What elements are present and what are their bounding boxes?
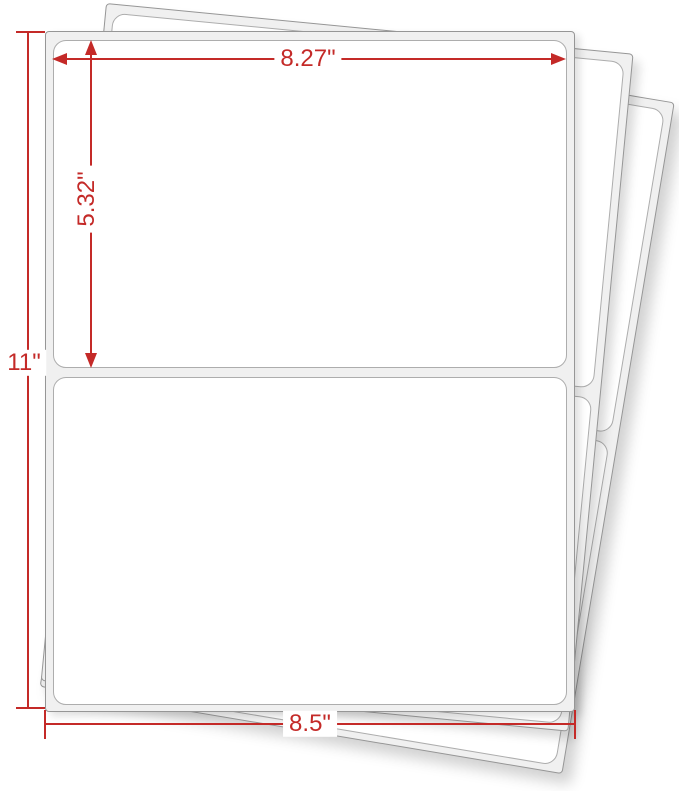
label-width-dimension-text: 8.27"	[274, 46, 341, 72]
arrowhead-right-icon	[551, 53, 566, 65]
sheet-width-tick-left	[44, 710, 46, 739]
arrowhead-down-icon	[85, 353, 97, 368]
sheet-height-tick-bottom	[16, 707, 45, 709]
product-diagram: 8.27" 5.32" 11" 8.5"	[0, 0, 679, 791]
label-slot-1	[53, 40, 567, 368]
sheet-width-dimension-text: 8.5"	[283, 711, 337, 737]
arrowhead-up-icon	[85, 40, 97, 55]
arrowhead-left-icon	[52, 53, 67, 65]
sheet-width-tick-right	[574, 710, 576, 739]
label-slot-2	[53, 377, 567, 705]
sheet-height-tick-top	[16, 31, 45, 33]
label-sheet-front	[45, 31, 575, 712]
label-height-dimension-text: 5.32"	[74, 165, 100, 232]
sheet-height-dimension-text: 11"	[1, 350, 46, 376]
